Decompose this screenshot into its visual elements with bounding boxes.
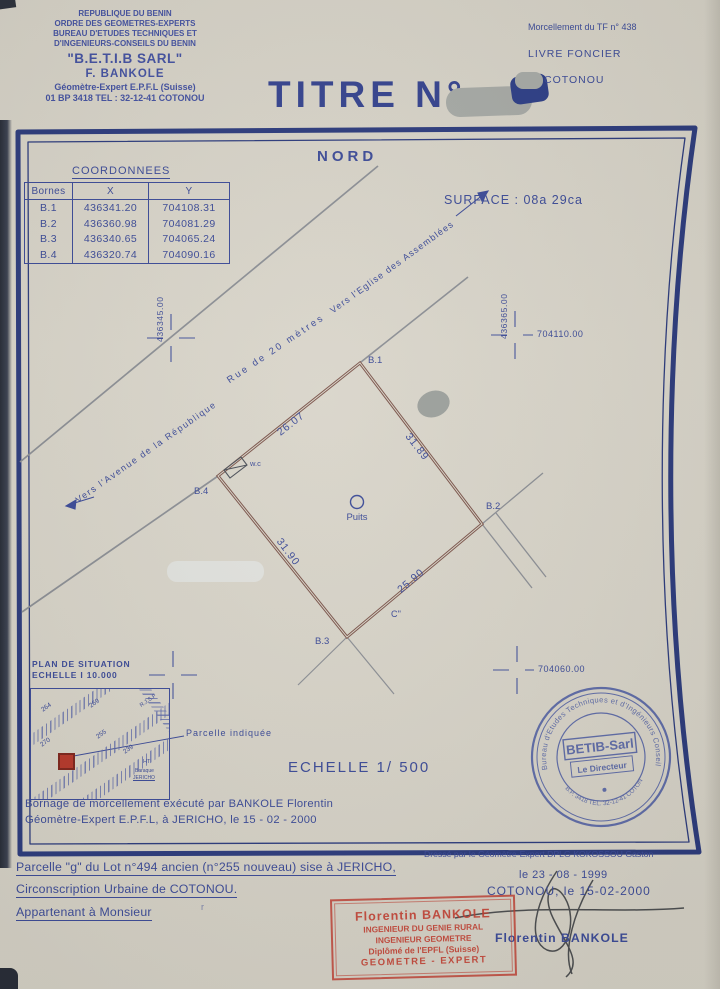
situation-label-jericho: JERICHO bbox=[133, 775, 155, 781]
table-cell: 436340.65 bbox=[73, 231, 149, 247]
situation-title: PLAN DE SITUATION bbox=[32, 659, 130, 669]
footer-owner-mark: r bbox=[201, 902, 204, 912]
table-cell: B.4 bbox=[25, 247, 73, 263]
situation-label-baraque: Baraque bbox=[135, 768, 154, 774]
letterhead-line: ORDRE DES GEOMETRES-EXPERTS bbox=[14, 19, 236, 29]
marker-b4: B.4 bbox=[194, 486, 208, 497]
letterhead-line: REPUBLIQUE DU BENIN bbox=[14, 9, 236, 19]
marker-b2: B.2 bbox=[486, 501, 500, 512]
footer-dresse-par: Dressé par le Géomètre-Expert DPLG KOKOS… bbox=[424, 849, 653, 859]
grid-crosses bbox=[147, 311, 534, 699]
svg-text:B.P. 3418 TEL. 32-12-41 COTO: B.P. 3418 TEL. 32-12-41 COTONOU bbox=[560, 748, 647, 812]
footer-date-1999: le 23 - 08 - 1999 bbox=[519, 869, 608, 881]
situation-parcel-number: 264 bbox=[40, 702, 53, 714]
wc-label: w.c bbox=[250, 459, 261, 468]
table-cell: 436360.98 bbox=[73, 216, 149, 232]
situation-map: 264 269 270 255 239 R.J.S.F HT Baraque J… bbox=[30, 688, 170, 800]
grid-x-right-label: 436365.00 bbox=[499, 293, 509, 339]
table-cell: B.3 bbox=[25, 231, 73, 247]
registry-redaction bbox=[515, 72, 543, 89]
footer-parcel-line2: Circonscription Urbaine de COTONOU. bbox=[16, 882, 237, 898]
registry-city: COTONOU bbox=[544, 74, 604, 86]
bornage-line2: Géomètre-Expert E.P.F.L, à JERICHO, le 1… bbox=[25, 814, 317, 826]
grid-y-top-label: 704110.00 bbox=[537, 329, 583, 339]
situation-note: Parcelle indiquée bbox=[186, 728, 272, 738]
table-cell: 436341.20 bbox=[73, 200, 149, 216]
red-stamp-line: GEOMETRE - EXPERT bbox=[361, 954, 488, 968]
col-header-bornes: Bornes bbox=[25, 183, 73, 200]
table-cell: 704108.31 bbox=[149, 200, 229, 216]
letterhead-line: D'INGENIEURS-CONSEILS DU BENIN bbox=[14, 39, 236, 49]
bornage-line1: Bornage de morcellement exécuté par BANK… bbox=[25, 798, 333, 810]
grid-y-bottom-label: 704060.00 bbox=[538, 664, 585, 674]
coordinates-table: Bornes X Y B.1 436341.20 704108.31 B.2 4… bbox=[24, 182, 230, 264]
well-label: Puits bbox=[346, 512, 367, 523]
coordinates-title: COORDONNEES bbox=[72, 165, 170, 179]
blue-round-stamp: Bureau d'Etudes Techniques et d'Ingénieu… bbox=[525, 681, 677, 833]
situation-label-ht: HT bbox=[143, 759, 150, 765]
situation-scale: ECHELLE I 10.000 bbox=[32, 670, 118, 680]
plan-whiteout-blob bbox=[167, 561, 264, 582]
table-cell: 436320.74 bbox=[73, 247, 149, 263]
col-header-x: X bbox=[73, 183, 149, 200]
stamp-director-label: Le Directeur bbox=[577, 760, 628, 775]
situation-target-parcel bbox=[58, 753, 75, 770]
table-cell: 704081.29 bbox=[149, 216, 229, 232]
page-title: TITRE N° bbox=[268, 74, 467, 116]
letterhead-name: F. BANKOLE bbox=[14, 68, 236, 80]
stamp-ring-bottom-text: B.P. 3418 TEL. 32-12-41 COTONOU bbox=[560, 748, 647, 812]
north-label: NORD bbox=[317, 148, 377, 165]
situation-parcel-number: 255 bbox=[95, 729, 108, 741]
marker-b3: B.3 bbox=[315, 636, 329, 647]
morcellement-ref: Morcellement du TF n° 438 bbox=[528, 22, 636, 32]
table-cell: 704065.24 bbox=[149, 231, 229, 247]
table-cell: B.1 bbox=[25, 200, 73, 216]
surface-value: SURFACE : 08a 29ca bbox=[444, 193, 583, 207]
red-stamp: Florentin BANKOLE INGENIEUR DU GENIE RUR… bbox=[330, 895, 517, 981]
marker-b1: B.1 bbox=[368, 355, 382, 366]
scanned-land-title-document: Bureau d'Etudes Techniques et d'Ingénieu… bbox=[0, 0, 720, 989]
letterhead-title: Géomètre-Expert E.P.F.L (Suisse) bbox=[14, 82, 236, 92]
table-cell: B.2 bbox=[25, 216, 73, 232]
letterhead-firm: "B.E.T.I.B SARL" bbox=[14, 51, 236, 66]
footer-owner-line: Appartenant à Monsieur bbox=[16, 905, 152, 921]
livre-foncier-label: LIVRE FONCIER bbox=[528, 48, 622, 60]
grid-x-left-label: 436345.00 bbox=[155, 296, 165, 342]
col-header-y: Y bbox=[149, 183, 229, 200]
scale-label: ECHELLE 1/ 500 bbox=[288, 759, 430, 776]
well-icon bbox=[351, 496, 364, 509]
footer-parcel-line1: Parcelle "g" du Lot n°494 ancien (n°255 … bbox=[16, 860, 396, 876]
letterhead-line: BUREAU D'ETUDES TECHNIQUES ET bbox=[14, 29, 236, 39]
letterhead: REPUBLIQUE DU BENIN ORDRE DES GEOMETRES-… bbox=[14, 9, 236, 103]
marker-c: C'' bbox=[391, 609, 401, 619]
table-cell: 704090.16 bbox=[149, 247, 229, 263]
wc-structure bbox=[224, 457, 247, 478]
letterhead-address: 01 BP 3418 TEL : 32-12-41 COTONOU bbox=[14, 93, 236, 103]
